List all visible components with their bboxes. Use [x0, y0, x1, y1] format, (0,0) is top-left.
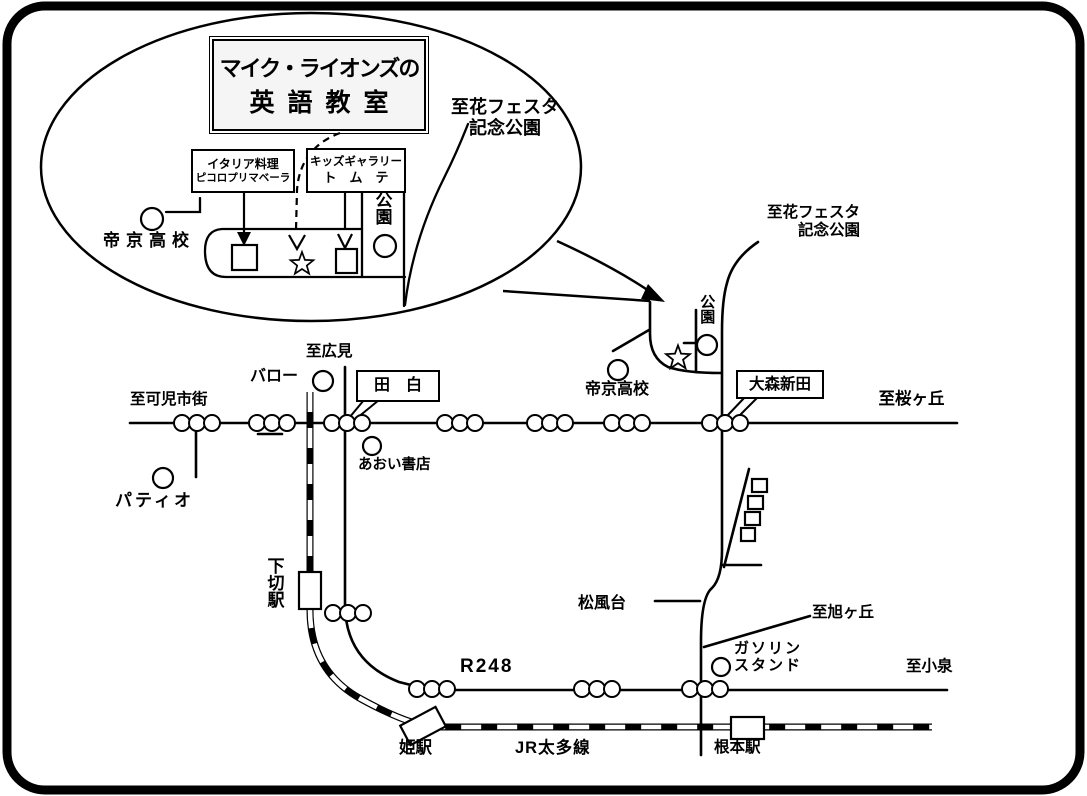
- label-balloon-park: 公園: [372, 191, 392, 225]
- restaurant-line1: イタリア料理: [207, 157, 279, 172]
- label-patio: パティオ: [115, 491, 194, 511]
- landmarks: [153, 335, 767, 676]
- gallery-line2: ト ム テ: [323, 170, 388, 186]
- label-to-hiromi: 至広見: [306, 343, 353, 361]
- gas-circle: [712, 658, 730, 676]
- restaurant-box: イタリア料理 ピコロプリマベーラ: [191, 149, 295, 193]
- stations: [299, 572, 764, 745]
- label-hime-station: 姫駅: [399, 739, 432, 758]
- balloon-park-circle: [374, 235, 396, 257]
- label-nemoto-station: 根本駅: [714, 739, 761, 757]
- school-circle: [608, 360, 628, 380]
- school-title-line2: 英語教室: [236, 83, 401, 119]
- school-title-line1: マイク・ライオンズの: [220, 51, 419, 83]
- label-hanafesta: 至花フェスタ 記念公園: [760, 204, 860, 240]
- label-valor: バロー: [250, 368, 298, 386]
- label-school: 帝京高校: [577, 381, 657, 399]
- omori-intersection-box: 大森新田: [736, 370, 824, 399]
- school-title-box: マイク・ライオンズの 英語教室: [212, 39, 426, 131]
- label-r248: R248: [460, 656, 513, 678]
- label-to-sakuragaoka: 至桜ヶ丘: [869, 390, 954, 409]
- omori-signal: [702, 415, 748, 431]
- balloon-school-circle: [141, 208, 163, 230]
- label-jr-taita-line: JR太多線: [515, 739, 591, 758]
- main-roads: [130, 242, 957, 755]
- label-matsukazedai: 松風台: [578, 595, 626, 613]
- label-balloon-hanafesta: 至花フェスタ 記念公園: [442, 97, 568, 138]
- label-to-asahigaoka: 至旭ヶ丘: [812, 604, 874, 622]
- restaurant-line2: ピコロプリマベーラ: [196, 172, 291, 185]
- access-map: マイク・ライオンズの 英語教室 イタリア料理 ピコロプリマベーラ キッズギャラリ…: [0, 0, 1087, 796]
- school-star-marker: [666, 345, 690, 368]
- label-to-kani: 至可児市街: [130, 391, 208, 409]
- label-to-koizumi: 至小泉: [906, 658, 953, 676]
- railway-jr-taita: [310, 392, 932, 727]
- gallery-line1: キッズギャラリー: [310, 155, 402, 169]
- label-aoi-bookstore: あおい書店: [358, 457, 431, 474]
- valor-circle: [313, 371, 333, 391]
- label-gas-station: ガソリン スタンド: [734, 640, 802, 675]
- gallery-box: キッズギャラリー ト ム テ: [306, 148, 406, 193]
- nemoto-station: [731, 717, 764, 739]
- shimogiri-station: [299, 572, 321, 609]
- label-balloon-school: 帝京高校: [93, 231, 205, 251]
- park-circle: [697, 335, 717, 355]
- tajiro-intersection-box: 田 白: [356, 370, 440, 402]
- aoi-circle: [363, 437, 381, 455]
- label-shimogiri-station: 下切駅: [264, 557, 284, 608]
- patio-circle: [153, 468, 173, 488]
- traffic-signals: [174, 415, 748, 697]
- label-park: 公園: [698, 294, 715, 324]
